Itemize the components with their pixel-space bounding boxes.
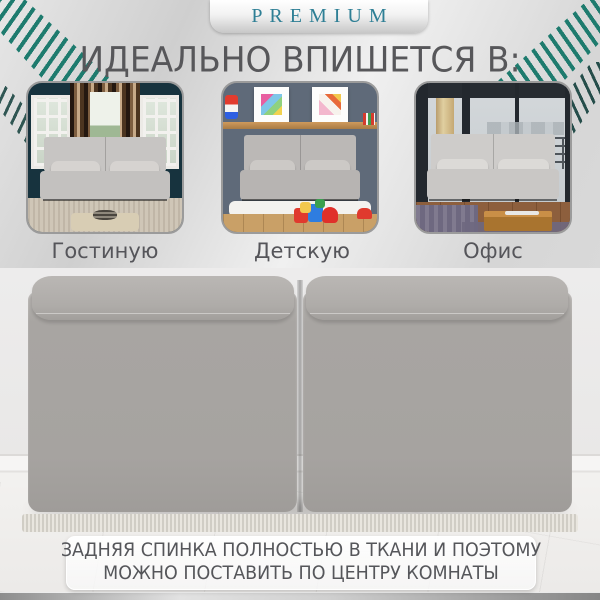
sofa-seats (240, 170, 360, 199)
sofa-base (242, 199, 357, 201)
sofa-back-panel-right (303, 292, 572, 512)
artwork (261, 94, 283, 115)
sofa-top-cushion-right (306, 276, 568, 320)
rug (22, 514, 578, 532)
artwork (319, 94, 341, 115)
ceiling-beam (416, 83, 570, 98)
plate-stack (93, 210, 118, 220)
books (363, 113, 375, 125)
sofa-center-seam (297, 280, 303, 512)
sofa-back-view (28, 276, 572, 512)
picture-frame (312, 87, 347, 121)
sofa-base (429, 199, 556, 201)
premium-badge: PREMIUM (210, 0, 428, 33)
premium-badge-label: PREMIUM (244, 5, 393, 28)
room-photo-office (414, 81, 572, 234)
product-infographic: PREMIUM ИДЕАЛЬНО ВПИШЕТСЯ В: (0, 0, 600, 600)
sofa-base (43, 199, 167, 201)
toy-block (315, 199, 324, 208)
room-caption-living-room: Гостиную (24, 239, 186, 263)
page-title: ИДЕАЛЬНО ВПИШЕТСЯ В: (0, 39, 600, 80)
sofa-seats (40, 171, 169, 200)
toy-block (300, 202, 311, 212)
note-line-2: МОЖНО ПОСТАВИТЬ ПО ЦЕНТРУ КОМНАТЫ (103, 562, 499, 586)
bottom-metal-strip (0, 592, 600, 600)
picture-frame (254, 87, 289, 121)
rocket-toy (225, 95, 239, 119)
sofa-top-cushion-left (32, 276, 294, 320)
sofa (427, 134, 559, 206)
toy-stack (322, 207, 339, 223)
sofa (240, 135, 360, 205)
sofa-seats (427, 169, 559, 199)
room-caption-office: Офис (412, 239, 574, 263)
room-photo-kids-room (221, 81, 379, 234)
note-line-1: ЗАДНЯЯ СПИНКА ПОЛНОСТЬЮ В ТКАНИ И ПОЭТОМ… (61, 540, 541, 564)
shelf (223, 122, 377, 129)
tray (505, 211, 539, 215)
sofa-back-panel-left (28, 292, 297, 512)
note-panel: ЗАДНЯЯ СПИНКА ПОЛНОСТЬЮ В ТКАНИ И ПОЭТОМ… (66, 536, 536, 590)
sofa (40, 137, 169, 206)
room-photo-living-room (26, 81, 184, 234)
toy-car (357, 208, 372, 218)
